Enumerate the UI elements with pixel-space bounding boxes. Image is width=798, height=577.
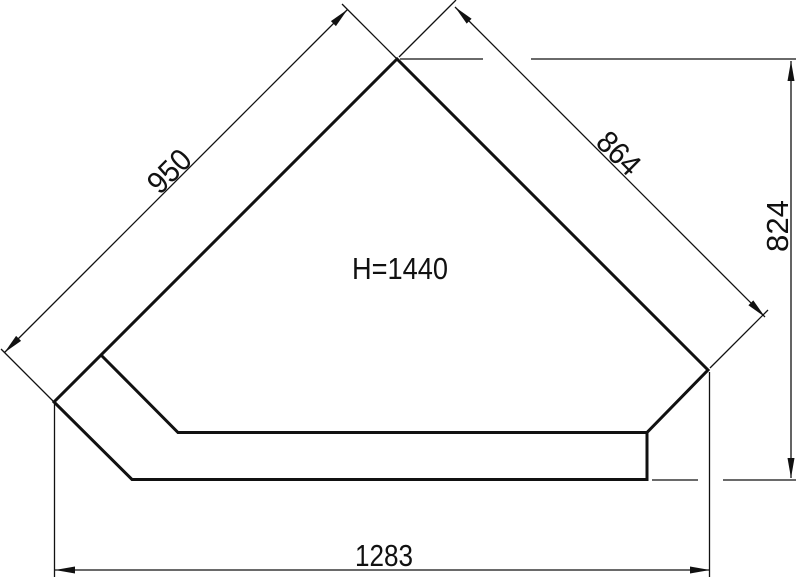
arrowhead-864-bottom-icon xyxy=(748,300,765,317)
dimension-label-864: 864 xyxy=(589,124,648,183)
height-annotation-label: H=1440 xyxy=(352,251,448,286)
corner-bath-drawing: 950 864 824 128 xyxy=(0,0,798,577)
arrowhead-824-top-icon xyxy=(788,61,795,81)
extension-line-950-top xyxy=(342,4,397,59)
dimension-950-group: 950 xyxy=(1,4,397,402)
dimension-label-824: 824 xyxy=(760,200,795,252)
extension-line-950-bottom xyxy=(1,349,54,402)
extension-line-864-top xyxy=(399,0,456,57)
arrowhead-1283-right-icon xyxy=(690,567,710,574)
arrowhead-824-bottom-icon xyxy=(788,458,795,478)
dimension-864-group: 864 xyxy=(399,0,768,368)
dimension-1283-group: 1283 xyxy=(55,372,711,577)
dimension-label-1283: 1283 xyxy=(355,538,413,573)
arrowhead-1283-left-icon xyxy=(55,567,75,574)
arrowhead-864-top-icon xyxy=(455,7,472,24)
bath-inner-rim-line xyxy=(101,355,647,433)
dimension-label-950: 950 xyxy=(140,142,199,201)
extension-line-864-bottom xyxy=(710,310,768,368)
technical-drawing-canvas: 950 864 824 128 xyxy=(0,0,798,577)
